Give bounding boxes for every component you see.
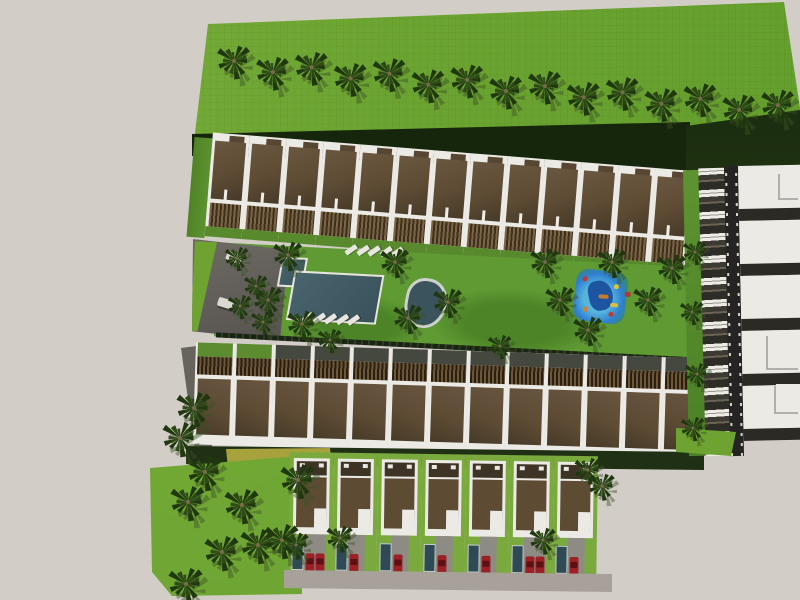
- front-yard: [205, 226, 243, 239]
- backyard-patio: [431, 350, 466, 365]
- roof: [391, 385, 426, 442]
- villa-lot: [288, 452, 334, 577]
- backyard-patio: [276, 345, 311, 360]
- site-plan-render: [0, 0, 800, 600]
- wood-deck: [467, 223, 500, 249]
- driveway: [303, 534, 326, 576]
- entrance-plaza: [188, 239, 289, 341]
- villa-house: [469, 461, 506, 537]
- backyard-patio: [470, 351, 505, 366]
- townhouse-unit: [544, 353, 586, 456]
- roof: [543, 167, 579, 227]
- backyard-patio: [626, 356, 661, 371]
- backyard-patio: [392, 349, 427, 364]
- party-wall: [518, 213, 522, 226]
- villa-extension: [780, 172, 800, 198]
- villa-house: [513, 461, 550, 537]
- pergola: [431, 364, 467, 383]
- backyard-patio: [198, 342, 233, 357]
- villa-house: [337, 459, 374, 535]
- side-wall: [490, 511, 502, 533]
- party-wall: [445, 207, 449, 220]
- roof: [235, 380, 270, 437]
- play-dot: [583, 306, 589, 312]
- backyard-patio: [548, 353, 583, 368]
- roof: [508, 388, 543, 445]
- pergola: [197, 356, 233, 375]
- roof-upper: [385, 462, 415, 476]
- side-wall: [314, 508, 326, 530]
- villa-extension: [776, 384, 800, 412]
- townhouse-unit: [349, 347, 391, 450]
- roof: [284, 147, 320, 207]
- wood-deck: [577, 232, 610, 258]
- red-car: [525, 556, 534, 575]
- backyard-patio: [587, 355, 622, 370]
- roof: [313, 382, 348, 439]
- roof: [469, 387, 504, 444]
- wood-deck: [651, 238, 684, 264]
- villa-lot: [332, 453, 378, 578]
- roof: [430, 386, 465, 443]
- wood-deck: [540, 229, 573, 255]
- party-wall: [297, 195, 301, 208]
- villa-house: [557, 462, 594, 538]
- plunge-pool: [511, 545, 523, 573]
- villa-lot: [420, 454, 466, 579]
- red-car: [305, 553, 314, 572]
- wood-deck: [245, 205, 278, 231]
- outdoor-gym-item: [598, 294, 608, 299]
- roof: [358, 153, 394, 213]
- party-wall: [592, 219, 596, 232]
- townhouse-unit: [271, 345, 313, 448]
- roof: [579, 170, 615, 230]
- roof: [547, 389, 582, 446]
- side-wall: [358, 509, 370, 531]
- wood-deck: [282, 208, 315, 234]
- pergola: [509, 366, 545, 385]
- plaza-green-wedge: [190, 241, 221, 332]
- east-villa: [739, 220, 800, 276]
- villa-row: [288, 452, 606, 582]
- party-wall: [408, 204, 412, 217]
- roof: [741, 223, 798, 258]
- party-wall: [482, 210, 486, 223]
- red-car: [569, 557, 578, 576]
- red-car: [535, 556, 544, 575]
- driveway: [391, 535, 409, 577]
- pergola: [626, 370, 662, 389]
- wood-deck: [393, 217, 426, 243]
- red-car: [437, 555, 446, 574]
- roof: [248, 144, 284, 204]
- pergola: [548, 367, 584, 386]
- villa-house: [425, 460, 462, 536]
- pergola: [314, 360, 350, 379]
- side-wall: [402, 510, 414, 532]
- villa-lot: [552, 456, 598, 581]
- backyard-patio: [509, 352, 544, 367]
- roof-upper: [517, 464, 547, 478]
- villa-extension: [768, 334, 800, 368]
- roof: [586, 391, 621, 448]
- roof: [211, 141, 247, 201]
- villa-lot: [376, 453, 422, 578]
- party-wall: [666, 225, 670, 238]
- roof: [274, 381, 309, 438]
- roof: [625, 392, 660, 449]
- wood-deck: [614, 235, 647, 261]
- play-dot: [582, 276, 588, 282]
- townhouse-unit: [310, 346, 352, 449]
- outdoor-gym-item: [625, 292, 631, 297]
- party-wall: [371, 201, 375, 214]
- roof: [321, 150, 357, 210]
- townhouse-unit: [232, 344, 274, 447]
- plunge-pool: [467, 544, 479, 572]
- backyard-patio: [353, 347, 388, 362]
- townhouse-unit: [622, 356, 664, 459]
- pergola: [587, 369, 623, 388]
- roof: [395, 155, 431, 215]
- parked-cart: [225, 250, 243, 265]
- villa-house: [293, 458, 330, 534]
- wood-deck: [503, 226, 536, 252]
- backyard-patio: [237, 344, 272, 359]
- red-car: [393, 554, 402, 573]
- party-wall: [260, 193, 264, 206]
- roof: [616, 173, 652, 233]
- plunge-pool: [291, 542, 303, 570]
- pergola: [236, 358, 272, 377]
- roof: [506, 164, 542, 224]
- red-car: [481, 556, 490, 575]
- townhouse-unit: [427, 350, 469, 453]
- red-car: [315, 553, 324, 572]
- roof: [742, 278, 799, 313]
- party-wall: [223, 190, 227, 203]
- townhouse-unit: [388, 349, 430, 452]
- east-villa: [740, 275, 800, 331]
- pergola: [353, 361, 389, 380]
- pergola: [392, 363, 428, 382]
- party-wall: [629, 222, 633, 235]
- villa-lot: [508, 455, 554, 580]
- driveway: [347, 535, 365, 577]
- roof: [469, 161, 505, 221]
- shadow-gap: [744, 428, 800, 441]
- townhouse-unit: [193, 342, 235, 445]
- party-wall: [334, 198, 338, 211]
- pergola: [275, 359, 311, 378]
- plunge-pool: [379, 543, 391, 571]
- townhouse-unit: [583, 355, 625, 458]
- roof-upper: [341, 462, 371, 476]
- villa-house: [381, 459, 418, 535]
- plunge-pool: [555, 546, 567, 574]
- side-wall: [578, 512, 590, 534]
- wood-deck: [430, 220, 463, 246]
- roof-upper: [429, 463, 459, 477]
- roof: [432, 158, 468, 218]
- townhouse-unit: [466, 351, 508, 454]
- wood-deck: [208, 202, 241, 228]
- roof-upper: [297, 461, 327, 475]
- party-wall: [555, 216, 559, 229]
- roof: [196, 378, 231, 435]
- plunge-pool: [335, 543, 347, 571]
- townhouse-unit: [505, 352, 547, 455]
- plunge-pool: [423, 544, 435, 572]
- wood-deck: [319, 211, 352, 237]
- parked-cart: [217, 297, 235, 310]
- play-dot: [614, 284, 620, 290]
- side-wall: [534, 511, 546, 533]
- roof-upper: [473, 464, 503, 478]
- villa-lot: [464, 454, 510, 579]
- roof-upper: [561, 465, 591, 479]
- play-dot: [608, 312, 614, 318]
- red-car: [349, 554, 358, 573]
- roof: [352, 383, 387, 440]
- outdoor-gym-item: [610, 303, 618, 307]
- backyard-patio: [314, 346, 349, 361]
- wood-deck: [356, 214, 389, 240]
- pergola: [470, 365, 506, 384]
- front-yard: [241, 229, 279, 242]
- side-wall: [446, 510, 458, 532]
